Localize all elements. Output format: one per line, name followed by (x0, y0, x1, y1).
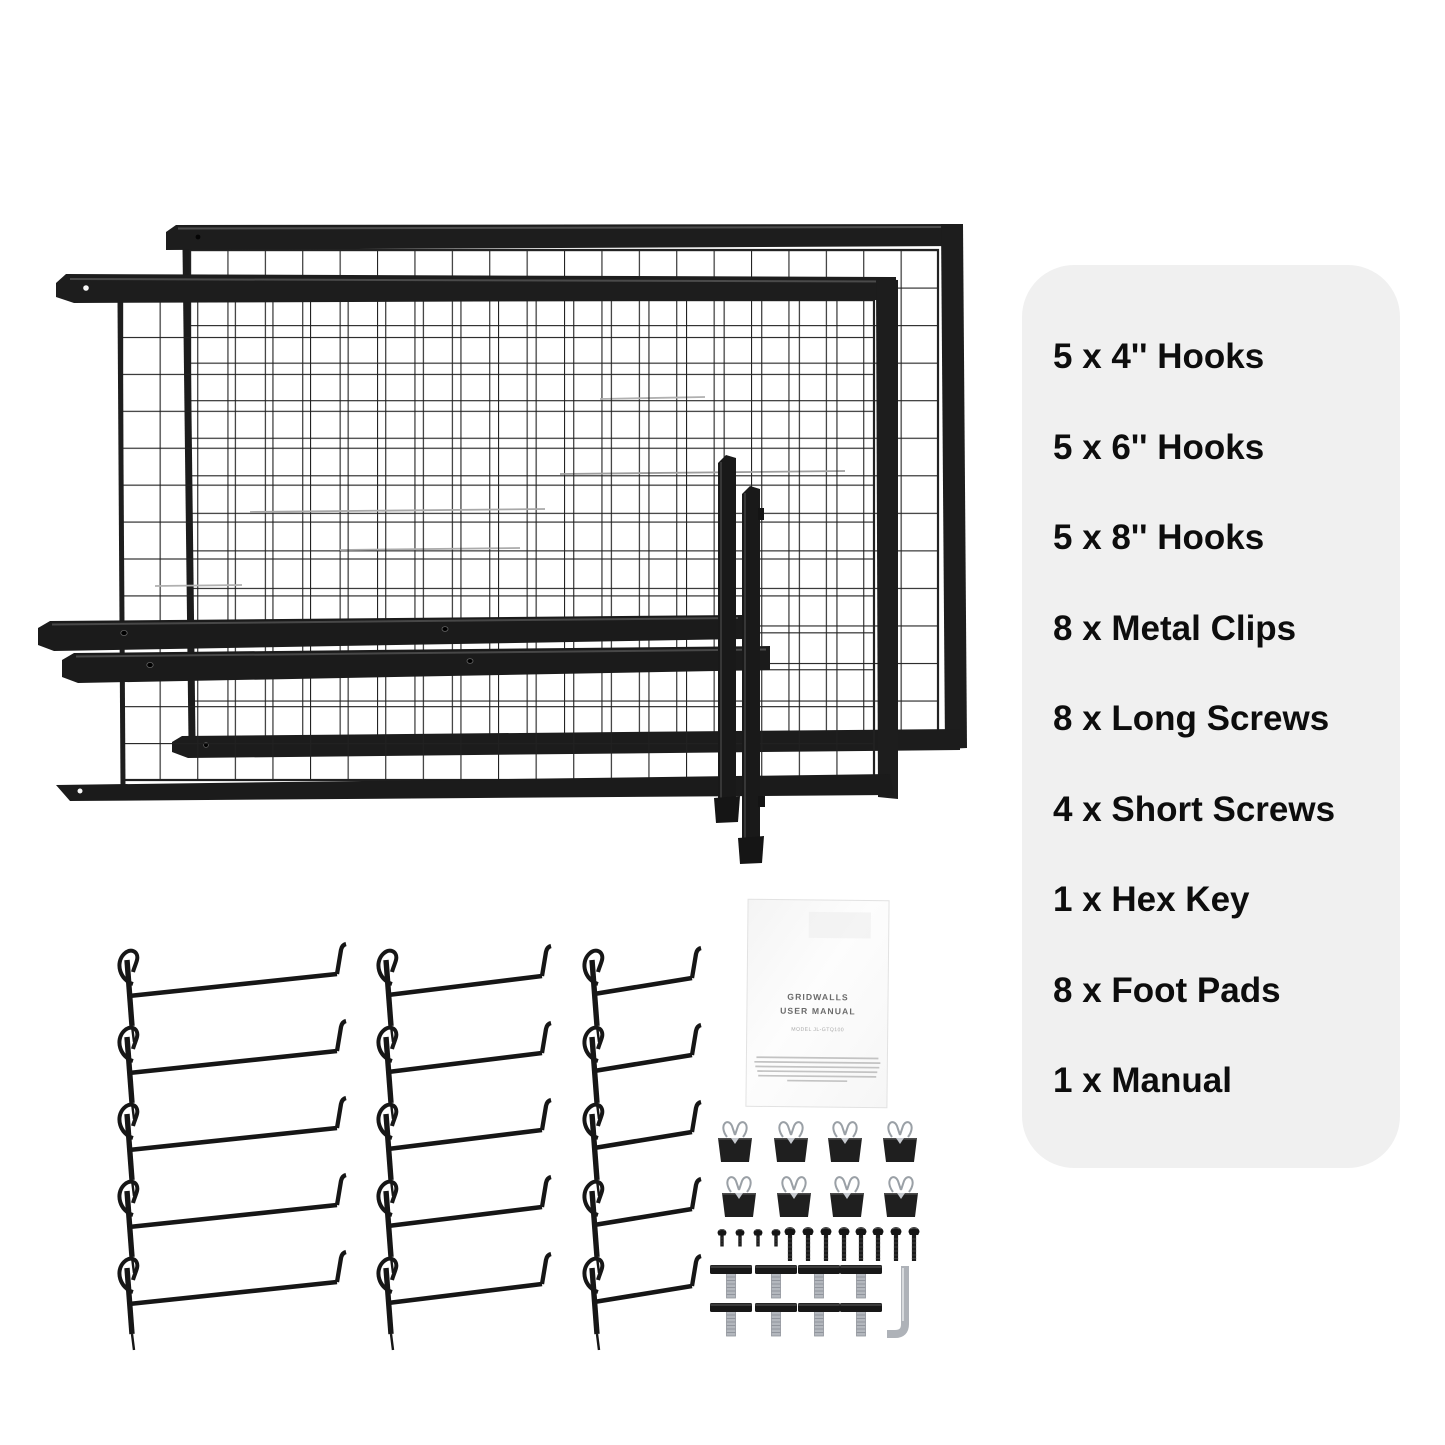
hook-4in (584, 1179, 701, 1273)
foot-pad (710, 1303, 752, 1336)
parts-list-item: 1 x Hex Key (1053, 882, 1390, 973)
foot-pad (798, 1265, 840, 1298)
foot-pad (840, 1303, 882, 1336)
gridwall-panel-front (56, 274, 898, 801)
parts-list: 5 x 4'' Hooks 5 x 6'' Hooks 5 x 8'' Hook… (1053, 339, 1390, 1154)
long-screw (803, 1227, 814, 1261)
long-screw (785, 1227, 796, 1261)
metal-clip (884, 1177, 918, 1217)
metal-clip (883, 1122, 917, 1162)
hook-8in (119, 1252, 346, 1350)
foot-pad (798, 1303, 840, 1336)
parts-list-item: 8 x Metal Clips (1053, 611, 1390, 702)
long-screw (839, 1227, 850, 1261)
long-screw (873, 1227, 884, 1261)
metal-clips (718, 1122, 918, 1217)
short-screw (754, 1229, 763, 1247)
front-panel-left-edge (120, 300, 123, 786)
parts-list-item: 5 x 6'' Hooks (1053, 430, 1390, 521)
back-panel-right-edge (941, 224, 967, 749)
hook-6in (378, 1177, 551, 1273)
hook-4in (584, 948, 701, 1042)
product-image-canvas: GRIDWALLS USER MANUAL MODEL JL-GTQ100 (0, 0, 1445, 1445)
hook-6in (378, 1254, 551, 1350)
manual-model-line: MODEL JL-GTQ100 (791, 1027, 844, 1034)
hex-key (887, 1266, 905, 1334)
foot-pads (710, 1265, 882, 1336)
foot-pad (840, 1265, 882, 1298)
foot-pad (755, 1303, 797, 1336)
parts-list-panel: 5 x 4'' Hooks 5 x 6'' Hooks 5 x 8'' Hook… (1022, 265, 1400, 1168)
metal-clip (830, 1177, 864, 1217)
metal-clip (777, 1177, 811, 1217)
parts-list-item: 1 x Manual (1053, 1063, 1390, 1154)
hook-4in (584, 1256, 701, 1350)
foot-pad (710, 1265, 752, 1298)
hook-4in (584, 1102, 701, 1196)
front-panel-mesh (122, 300, 874, 780)
parts-list-item: 5 x 8'' Hooks (1053, 520, 1390, 611)
hook-8in (119, 1021, 346, 1119)
parts-list-item: 8 x Foot Pads (1053, 973, 1390, 1064)
hook-6in (378, 1023, 551, 1119)
parts-list-item: 5 x 4'' Hooks (1053, 339, 1390, 430)
hooks-set (119, 944, 701, 1350)
short-screw (772, 1229, 781, 1247)
short-screws (718, 1229, 781, 1247)
short-screw (736, 1229, 745, 1247)
parts-list-item: 8 x Long Screws (1053, 701, 1390, 792)
manual-sheet: GRIDWALLS USER MANUAL MODEL JL-GTQ100 (746, 899, 889, 1107)
short-screw (718, 1229, 727, 1247)
long-screw (891, 1227, 902, 1261)
manual-title-line1: GRIDWALLS (787, 992, 849, 1003)
long-screw (821, 1227, 832, 1261)
metal-clip (828, 1122, 862, 1162)
hook-6in (378, 1100, 551, 1196)
foot-pad (755, 1265, 797, 1298)
hook-8in (119, 944, 346, 1042)
parts-list-item: 4 x Short Screws (1053, 792, 1390, 883)
hook-8in (119, 1175, 346, 1273)
hook-4in (584, 1025, 701, 1119)
front-panel-right-edge (876, 279, 898, 799)
manual-title-line2: USER MANUAL (780, 1006, 856, 1017)
metal-clip (774, 1122, 808, 1162)
hook-8in (119, 1098, 346, 1196)
hook-6in (378, 946, 551, 1042)
long-screws (785, 1227, 920, 1261)
long-screw (856, 1227, 867, 1261)
metal-clip (718, 1122, 752, 1162)
long-screw (909, 1227, 920, 1261)
metal-clip (722, 1177, 756, 1217)
